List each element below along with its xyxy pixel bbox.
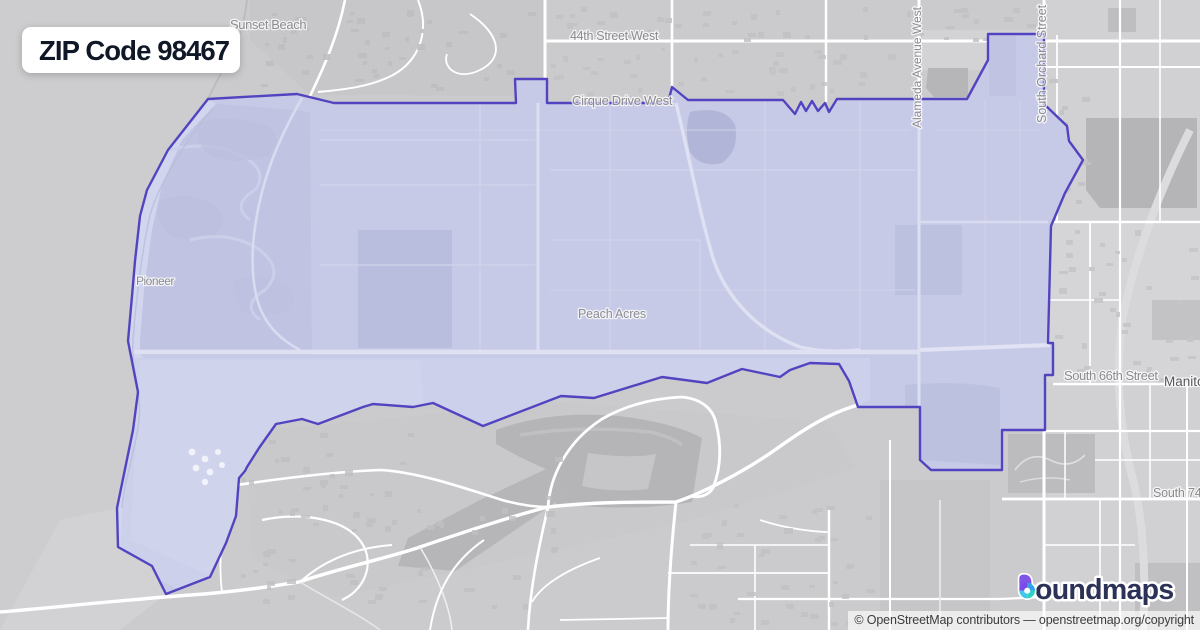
svg-text:44th Street West: 44th Street West (570, 29, 659, 43)
svg-text:South Orchard Street: South Orchard Street (1035, 4, 1049, 123)
svg-text:South 74th St: South 74th St (1153, 486, 1200, 500)
svg-text:Peach Acres: Peach Acres (578, 307, 646, 321)
svg-text:oundmaps: oundmaps (1035, 574, 1174, 606)
svg-text:Cirque Drive West: Cirque Drive West (572, 93, 673, 108)
svg-text:Sunset Beach: Sunset Beach (230, 17, 306, 32)
svg-text:Alameda Avenue West: Alameda Avenue West (910, 6, 924, 128)
svg-text:Pioneer: Pioneer (136, 274, 174, 288)
svg-text:South 66th Street: South 66th Street (1064, 368, 1158, 383)
svg-text:Manito: Manito (1164, 374, 1200, 389)
